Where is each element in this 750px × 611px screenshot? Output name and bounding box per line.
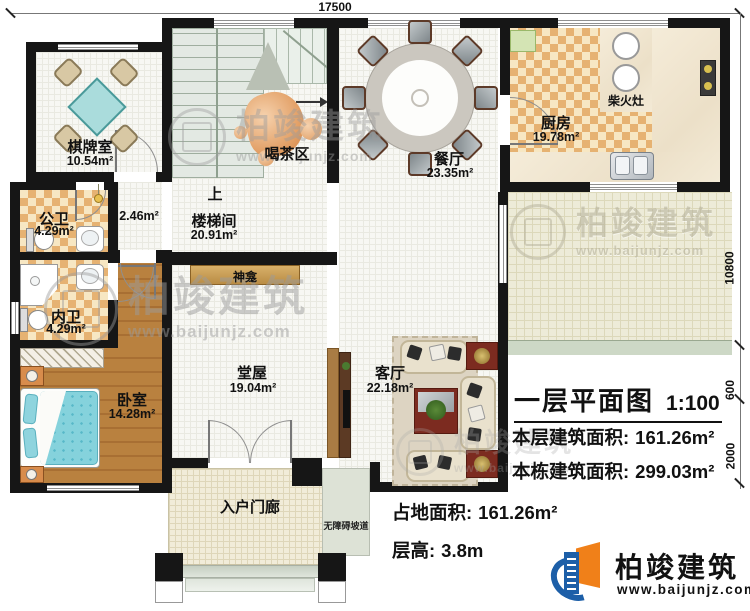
stat-building-area: 本栋建筑面积:299.03m²: [512, 458, 714, 484]
table-plant: [426, 400, 446, 420]
sink-basin: [81, 268, 99, 284]
range-burner: [704, 82, 712, 90]
porch-step-1: [180, 565, 320, 578]
sink-basin: [81, 230, 99, 246]
room-label-tea: 喝茶区: [254, 143, 320, 164]
ramp-label: 无障碍坡道: [323, 519, 369, 532]
floor-plan: 柏竣建筑 www.baijunjz.com 柏竣建筑 www.baijunjz.…: [0, 0, 750, 611]
tv: [343, 390, 350, 428]
sofa-pillow: [437, 455, 452, 470]
living-patio-window: [499, 205, 507, 283]
room-area-chess: 10.54m²: [60, 154, 120, 168]
brand-name: 柏竣建筑: [615, 546, 739, 586]
stair-arrow-line: [296, 101, 320, 103]
plan-title-block: 一层平面图 1:100: [514, 381, 722, 423]
plan-scale: 1:100: [666, 392, 720, 416]
sofa-pillow: [429, 344, 447, 362]
stair-up-label: 上: [203, 183, 227, 204]
logo-windows: [567, 556, 576, 590]
kitchen-window-bottom: [590, 184, 677, 190]
dining-chair: [474, 86, 498, 110]
bedroom-door-leaf: [154, 263, 156, 299]
sink-basin: [633, 156, 648, 175]
stove-label: 柴火灶: [596, 92, 656, 109]
brand-logo-icon: [548, 540, 610, 602]
lamp: [26, 370, 38, 382]
room-area-main-hall: 19.04m²: [225, 381, 281, 395]
stat-site-area: 占地面积:161.26m²: [392, 499, 557, 525]
chess-window: [58, 44, 138, 50]
stair-rail: [216, 28, 218, 178]
patio-floor: [508, 192, 732, 340]
ramp-area: [322, 468, 370, 556]
bedroom-window: [47, 485, 139, 491]
logo-tower-orange: [576, 542, 600, 588]
dining-table-center: [411, 89, 429, 107]
tea-rock-2: [300, 118, 322, 140]
side-table-plant: [474, 348, 490, 364]
range-burner: [704, 65, 712, 73]
cabinet-plant: [342, 362, 350, 370]
shower-drain: [30, 276, 40, 286]
dimension-top-width: 17500: [300, 0, 370, 14]
dimension-line-top: [12, 13, 741, 14]
room-area-private-wc: 4.29m²: [42, 322, 90, 336]
kitchen-window-top: [558, 20, 668, 26]
room-label-living: 客厅: [368, 362, 412, 383]
side-table-plant: [474, 456, 490, 472]
room-area-dining: 23.35m²: [422, 166, 478, 180]
stove-burner: [612, 32, 640, 60]
room-area-bedroom: 14.28m²: [104, 407, 160, 421]
room-label-porch: 入户门廊: [206, 496, 294, 517]
entry-door-leaf-right: [290, 420, 292, 463]
toilet-tank: [20, 308, 28, 332]
stair-window: [214, 20, 294, 26]
porch-step-2: [185, 578, 315, 592]
porch-column-left: [155, 553, 183, 581]
room-label-main-hall: 堂屋: [230, 362, 274, 383]
patio-step: [508, 340, 732, 355]
dining-chair: [408, 20, 432, 44]
sink-basin: [615, 156, 630, 175]
room-area-kitchen: 19.78m²: [528, 130, 584, 144]
stove-burner: [612, 64, 640, 92]
dining-chair: [342, 86, 366, 110]
wardrobe: [20, 348, 104, 368]
room-area-stair: 20.91m²: [184, 228, 244, 242]
brand-url: www.baijunjz.com: [617, 582, 750, 597]
stat-floor-height: 层高:3.8m: [392, 537, 483, 563]
dimension-right-lower: 2000: [716, 428, 744, 484]
lamp: [26, 469, 37, 480]
sofa-pillow: [447, 346, 462, 361]
pendant-light: [94, 194, 103, 203]
porch-column-right: [318, 553, 346, 581]
porch-column-base-left: [155, 581, 183, 603]
tv-partition-wall: [327, 348, 339, 458]
tea-rock-4: [234, 126, 247, 139]
porch-column-base-right: [318, 581, 346, 603]
plan-title: 一层平面图: [514, 381, 654, 418]
dimension-right-upper: 10800: [716, 242, 744, 294]
room-area-living: 22.18m²: [362, 381, 418, 395]
sofa-pillow: [467, 427, 482, 442]
shrine-label: 神龛: [227, 268, 263, 285]
stat-floor-area: 本层建筑面积:161.26m²: [512, 424, 714, 450]
private-wc-window: [11, 302, 19, 334]
room-area-public-wc: 4.29m²: [30, 224, 78, 238]
area-label-hallway: 2.46m²: [112, 209, 166, 223]
entry-door-leaf-left: [208, 420, 210, 463]
kitchen-plant: [510, 30, 536, 52]
